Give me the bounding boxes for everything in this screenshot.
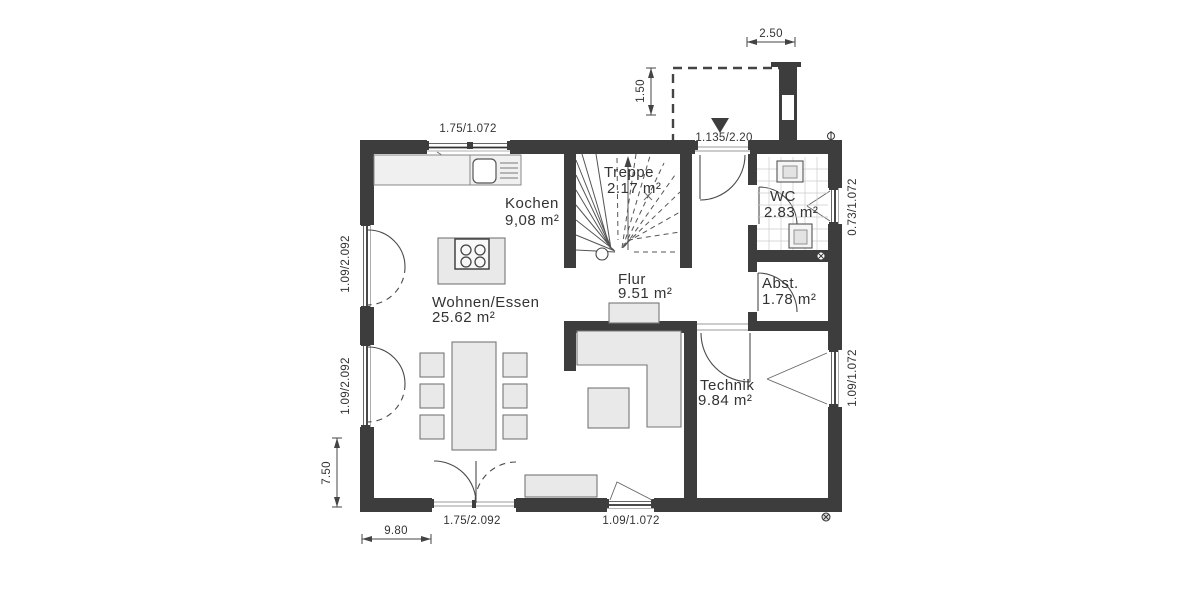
living-sideboard bbox=[525, 475, 597, 497]
survey-point-bottom-icon bbox=[822, 513, 830, 521]
room-label-abst: Abst. bbox=[762, 275, 799, 292]
floor-plan-svg: Kochen 9,08 m² Treppe 2.17 m² WC 2.83 m²… bbox=[0, 0, 1200, 600]
room-area-treppe: 2.17 m² bbox=[607, 180, 661, 197]
terrace-door-opening bbox=[429, 498, 519, 512]
wc-toilet bbox=[789, 224, 812, 248]
left-window-upper bbox=[360, 221, 374, 311]
dim-wc-window: 0.73/1.072 bbox=[847, 178, 859, 235]
room-label-kochen: Kochen bbox=[505, 195, 559, 212]
room-label-wc: WC bbox=[770, 188, 796, 205]
dining-table bbox=[452, 342, 496, 450]
technik-window bbox=[828, 347, 842, 409]
entrance-door-swing bbox=[700, 155, 745, 200]
dim-overall-depth-line bbox=[332, 438, 342, 507]
dim-technik-window: 1.09/1.072 bbox=[847, 349, 859, 406]
terrace-door-swing bbox=[434, 461, 516, 503]
dim-overall-depth: 7.50 bbox=[321, 461, 333, 485]
survey-point-top-icon bbox=[828, 131, 835, 141]
hall-sideboard bbox=[609, 303, 659, 323]
dim-left-window-lower: 1.09/2.092 bbox=[340, 357, 352, 414]
kitchen-island bbox=[438, 238, 505, 284]
dim-left-window-upper: 1.09/2.092 bbox=[340, 235, 352, 292]
wc-sink bbox=[777, 161, 803, 182]
room-area-technik: 9.84 m² bbox=[698, 392, 752, 409]
dim-kitchen-window: 1.75/1.072 bbox=[439, 123, 496, 135]
dim-entrance-door: 1.135/2.20 bbox=[695, 132, 752, 144]
technik-door-swing bbox=[697, 324, 750, 382]
coffee-table bbox=[588, 388, 629, 428]
kitchen-sink bbox=[473, 159, 496, 183]
entrance-marker-icon bbox=[711, 118, 729, 133]
room-area-wohnen-essen: 25.62 m² bbox=[432, 309, 495, 326]
dim-porch-width: 2.50 bbox=[759, 28, 783, 40]
shaft-symbol-icon bbox=[814, 250, 828, 262]
dim-porch-depth: 1.50 bbox=[635, 79, 647, 103]
room-label-treppe: Treppe bbox=[604, 164, 654, 181]
dim-terrace-door: 1.75/2.092 bbox=[443, 515, 500, 527]
dim-bottom-window: 1.09/1.072 bbox=[602, 515, 659, 527]
room-area-kochen: 9,08 m² bbox=[505, 212, 559, 229]
room-area-flur: 9.51 m² bbox=[618, 285, 672, 302]
room-area-abst: 1.78 m² bbox=[762, 291, 816, 308]
room-area-wc: 2.83 m² bbox=[764, 204, 818, 221]
dim-porch-depth-line bbox=[646, 68, 656, 115]
stair-newel-post bbox=[596, 248, 608, 260]
left-window-lower bbox=[360, 341, 374, 430]
kitchen-counter bbox=[374, 155, 521, 185]
floor-plan-canvas: Kochen 9,08 m² Treppe 2.17 m² WC 2.83 m²… bbox=[0, 0, 1200, 600]
bottom-window bbox=[604, 498, 656, 512]
dim-overall-width: 9.80 bbox=[384, 525, 408, 537]
